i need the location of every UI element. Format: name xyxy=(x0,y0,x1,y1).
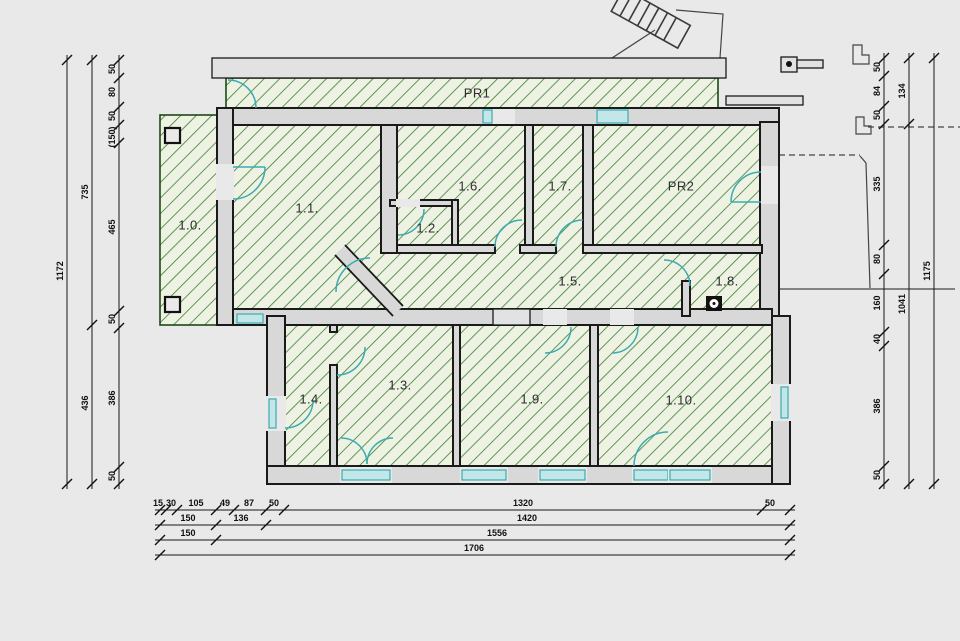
dim-bottom-r1-1: 30 xyxy=(166,498,176,508)
step-glyph-mid xyxy=(856,117,871,134)
ramp-edge xyxy=(612,30,655,58)
room-label-1-0: 1.0. xyxy=(178,218,201,233)
fixture-18-dot xyxy=(713,302,716,305)
dim-right-c6: 40 xyxy=(872,334,882,344)
dim-left-lower: 436 xyxy=(80,395,90,410)
window-south-3 xyxy=(540,470,585,480)
room-label-1-5: 1.5. xyxy=(558,274,581,289)
dim-right-c2: 50 xyxy=(872,110,882,120)
wall-15-18 xyxy=(682,281,690,316)
dim-bottom-r1-5: 50 xyxy=(269,498,279,508)
room-label-1-2: 1.2. xyxy=(416,221,439,236)
dim-right-c0: 50 xyxy=(872,62,882,72)
post-dot xyxy=(786,61,792,67)
dim-right-c8: 50 xyxy=(872,470,882,480)
room-label-1-4: 1.4. xyxy=(299,392,322,407)
dim-left-c2: 50 xyxy=(107,111,117,121)
dim-bottom-r1-2: 105 xyxy=(188,498,203,508)
dim-right-i0: 134 xyxy=(897,83,907,98)
dim-left-c3: (150) xyxy=(107,126,117,147)
dim-left-total: 1172 xyxy=(55,261,65,281)
wall-corridor-b xyxy=(520,245,556,253)
dim-bottom-r1-0: 15 xyxy=(153,498,163,508)
wall-west-upper xyxy=(217,108,233,325)
gap-east-upper-door xyxy=(761,166,778,204)
wall-13-19 xyxy=(453,325,460,466)
gap-door-10-11 xyxy=(216,164,234,200)
wall-17-pr2 xyxy=(583,125,593,253)
dim-left-c6: 386 xyxy=(107,390,117,405)
dim-right-c7: 386 xyxy=(872,398,882,413)
window-west-lower xyxy=(269,399,276,428)
window-mid-wall xyxy=(237,314,263,323)
dim-left-c5: 50 xyxy=(107,314,117,324)
dim-left-c4: 465 xyxy=(107,219,117,234)
dim-left-c7: 50 xyxy=(107,471,117,481)
wall-east-upper xyxy=(760,122,779,318)
dim-bottom-r1-3: 49 xyxy=(220,498,230,508)
window-south-2 xyxy=(462,470,506,480)
ramp-stairs-icon xyxy=(611,0,690,48)
dim-left-upper: 735 xyxy=(80,184,90,199)
fence-bar xyxy=(726,96,803,105)
dim-right-c5: 160 xyxy=(872,295,882,310)
window-east-lower xyxy=(781,387,788,418)
dim-right-i1: 1041 xyxy=(897,294,907,314)
wall-11-16 xyxy=(381,125,397,253)
window-south-1 xyxy=(342,470,390,480)
room-label-1-3: 1.3. xyxy=(388,378,411,393)
post-1 xyxy=(165,128,180,143)
wall-corridor-a xyxy=(397,245,495,253)
room-label-1-10: 1.10. xyxy=(666,393,697,408)
boundary-thin xyxy=(860,156,870,288)
room-label-1-8: 1.8. xyxy=(715,274,738,289)
wall-corridor-c xyxy=(583,245,762,253)
floor-plan-canvas: PR1 1.0. 1.1. 1.2. 1.6. 1.7. PR2 1.5. 1.… xyxy=(0,0,960,641)
dim-right-total: 1175 xyxy=(922,261,932,281)
post-2 xyxy=(165,297,180,312)
room-label-pr2: PR2 xyxy=(668,179,695,194)
dim-bottom-r2-1: 136 xyxy=(233,513,248,523)
gap-12-door xyxy=(396,199,420,207)
dim-bottom-r1-7: 50 xyxy=(765,498,775,508)
dim-bottom-r2-0: 150 xyxy=(180,513,195,523)
post-bar xyxy=(797,60,823,68)
gap-mid-110 xyxy=(610,309,634,325)
window-north-pr2 xyxy=(597,110,628,123)
room-label-1-6: 1.6. xyxy=(458,179,481,194)
room-label-pr1: PR1 xyxy=(464,86,491,101)
ramp-outline xyxy=(676,10,723,58)
wall-14-13-stub xyxy=(330,325,337,332)
dim-bottom-r4-0: 1706 xyxy=(464,543,484,553)
hatched-areas xyxy=(160,78,772,466)
gap-mid-19 xyxy=(543,309,567,325)
dim-left-c1: 80 xyxy=(107,87,117,97)
wall-pr1-outer xyxy=(212,58,726,78)
window-south-4 xyxy=(634,470,668,480)
room-label-1-9: 1.9. xyxy=(520,392,543,407)
dim-right-c3: 335 xyxy=(872,176,882,191)
wall-19-110 xyxy=(590,325,598,466)
room-label-1-7: 1.7. xyxy=(548,179,571,194)
step-glyph-top xyxy=(853,45,869,64)
dim-bottom-r2-2: 1420 xyxy=(517,513,537,523)
window-south-5 xyxy=(670,470,710,480)
wall-16-17 xyxy=(525,125,533,253)
dim-right-c4: 80 xyxy=(872,254,882,264)
room-label-1-1: 1.1. xyxy=(295,201,318,216)
dim-right-c1: 84 xyxy=(872,86,882,96)
dim-bottom-r1-4: 87 xyxy=(244,498,254,508)
wall-14-13 xyxy=(330,365,337,466)
dim-bottom-r3-0: 150 xyxy=(180,528,195,538)
dim-left-c0: 50 xyxy=(107,64,117,74)
step-landing xyxy=(493,309,530,325)
area-upper-rooms xyxy=(233,125,760,309)
dim-bottom-r1-6: 1320 xyxy=(513,498,533,508)
window-north-sliver xyxy=(483,110,492,123)
dim-bottom-r3-1: 1556 xyxy=(487,528,507,538)
